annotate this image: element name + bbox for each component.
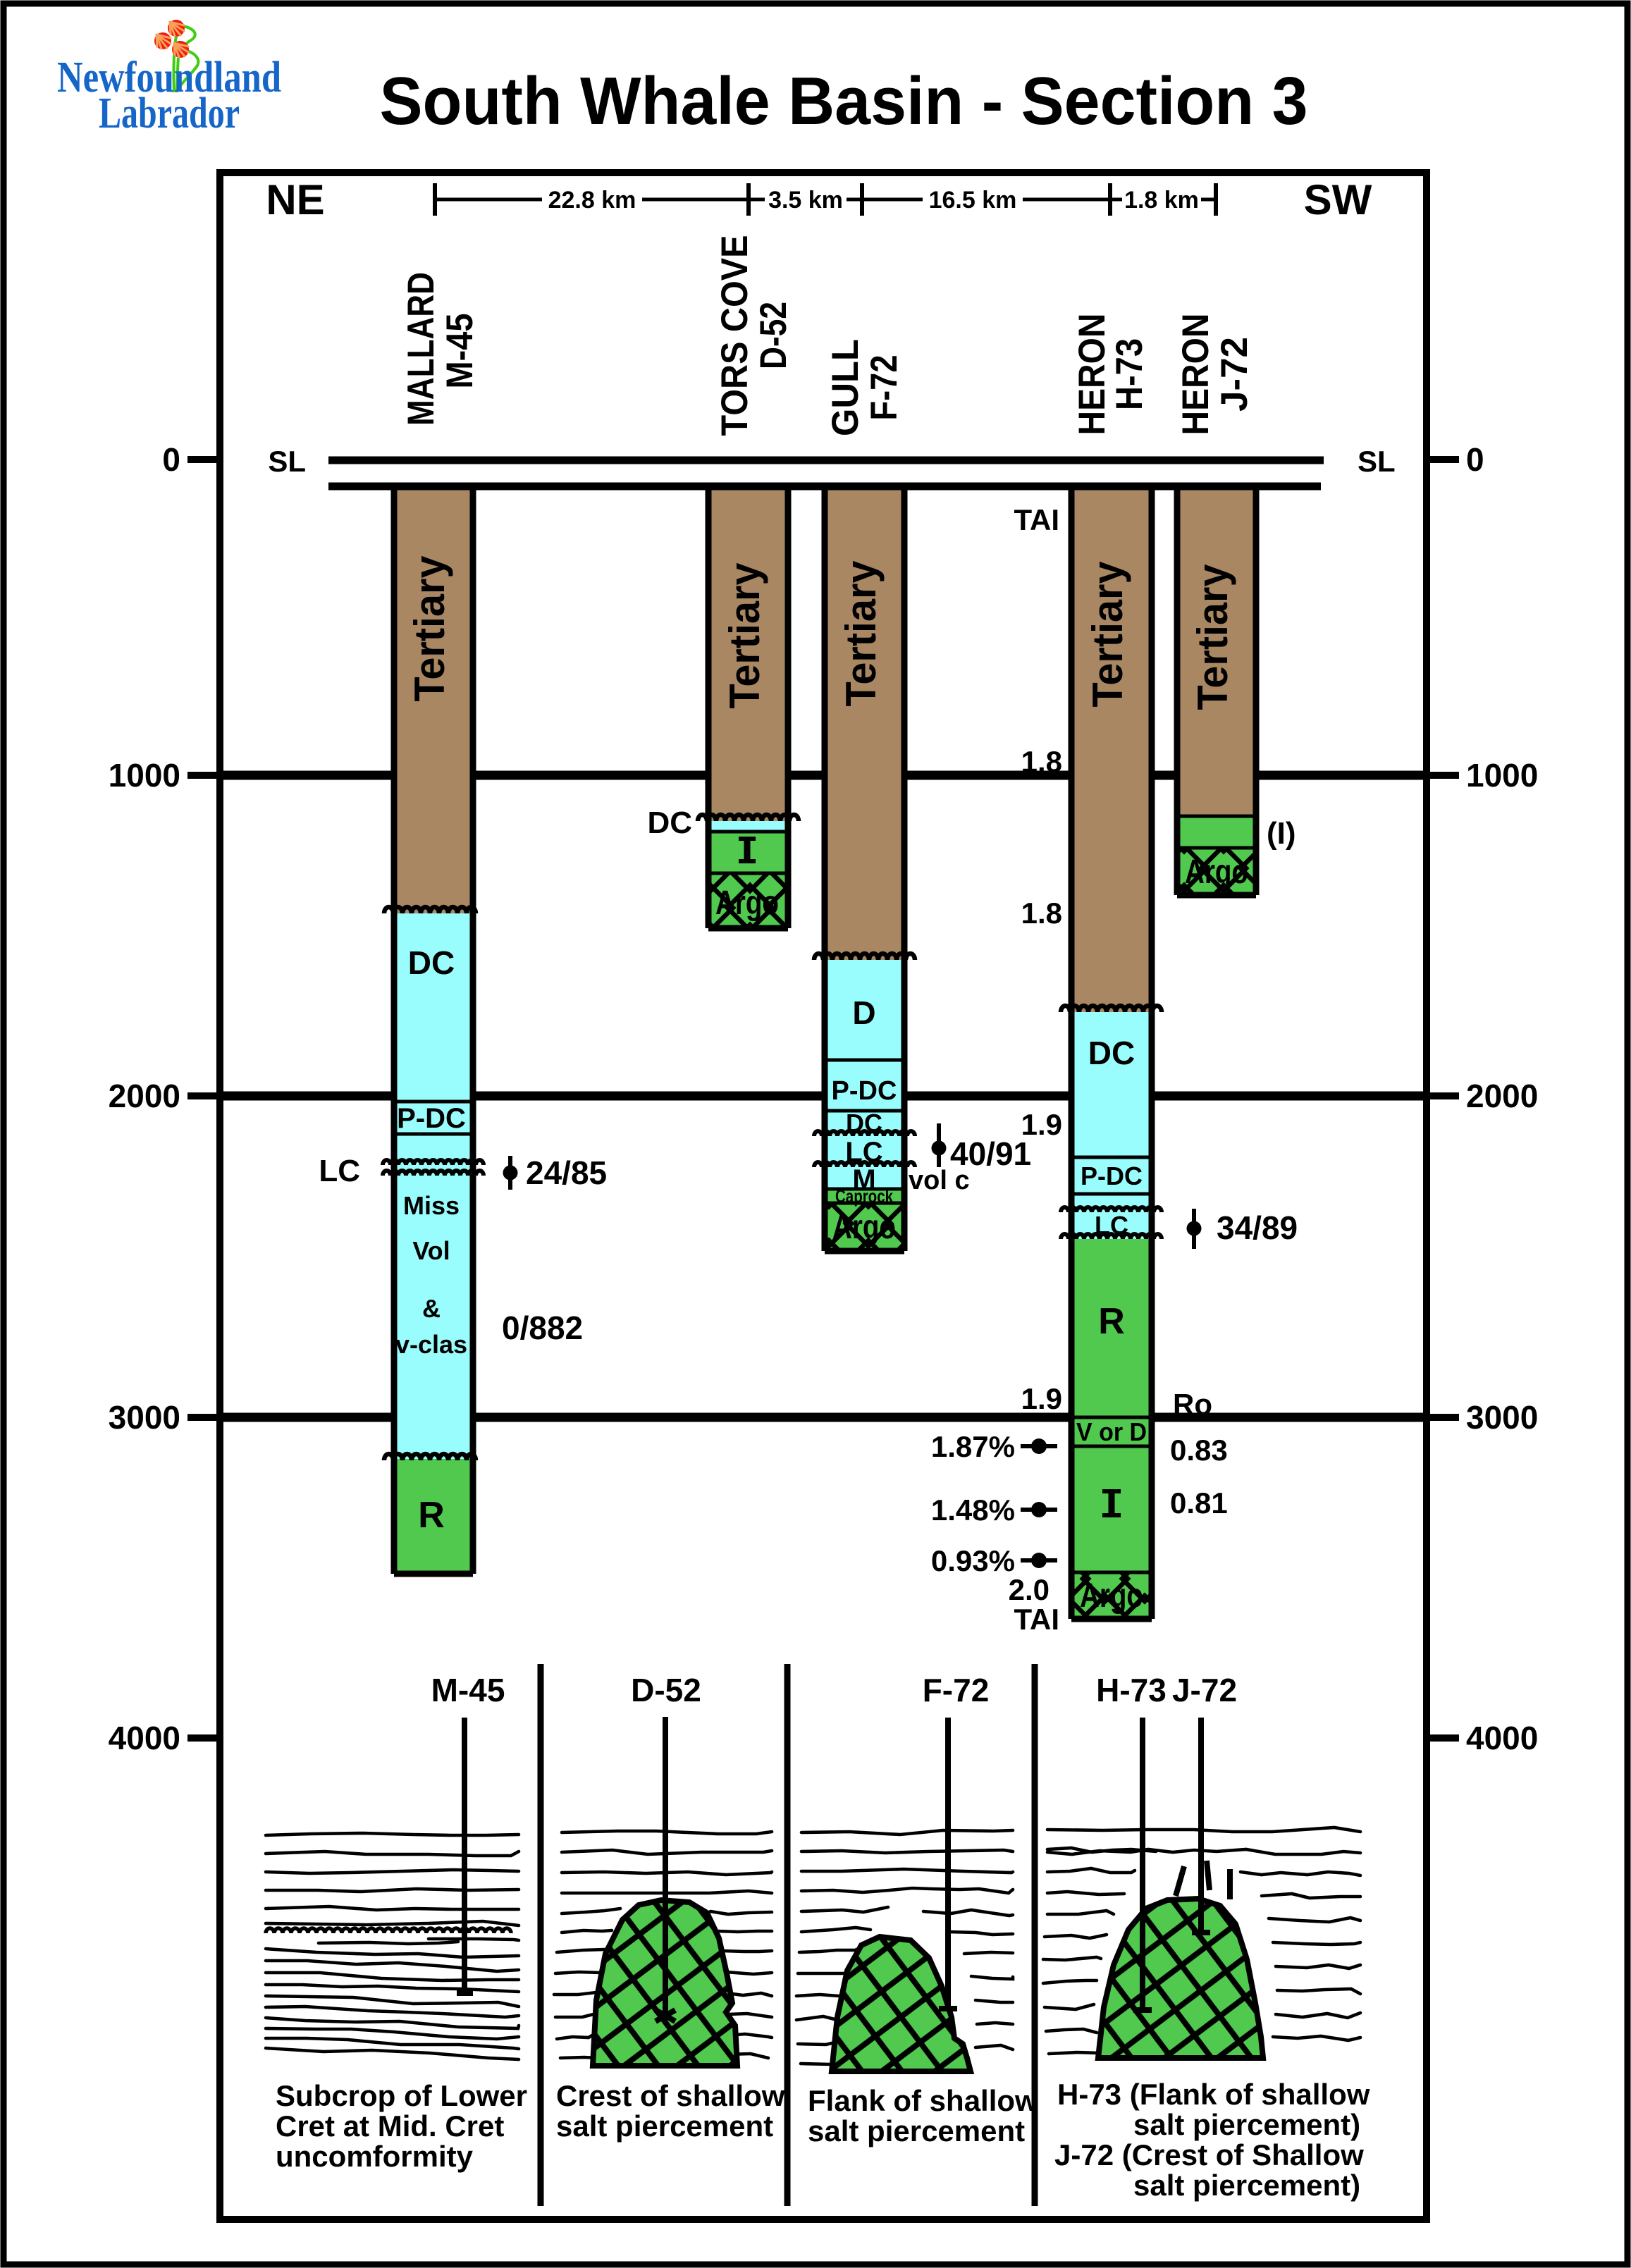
svg-text:J-72: J-72 (1172, 1672, 1237, 1708)
svg-text:1000: 1000 (109, 757, 180, 794)
svg-text:1.8 km: 1.8 km (1124, 187, 1199, 214)
svg-text:0: 0 (162, 441, 180, 478)
svg-text:Cret at Mid. Cret: Cret at Mid. Cret (276, 2109, 504, 2143)
svg-text:Caprock: Caprock (835, 1185, 893, 1207)
svg-text:Tertiary: Tertiary (1189, 564, 1236, 710)
svg-text:24/85: 24/85 (526, 1154, 607, 1191)
svg-text:salt piercement): salt piercement) (1133, 2169, 1360, 2202)
svg-text:F-72: F-72 (863, 355, 905, 421)
svg-text:P-DC: P-DC (397, 1103, 466, 1134)
svg-text:F-72: F-72 (923, 1672, 990, 1708)
svg-text:v-clas: v-clas (395, 1330, 467, 1359)
svg-text:2.0: 2.0 (1009, 1573, 1050, 1606)
svg-text:salt piercement: salt piercement (556, 2109, 773, 2143)
svg-text:H-73 (Flank of shallow: H-73 (Flank of shallow (1057, 2078, 1370, 2111)
svg-text:Tertiary: Tertiary (1084, 561, 1131, 708)
svg-text:Crest of shallow: Crest of shallow (556, 2079, 785, 2112)
svg-text:4000: 4000 (109, 1720, 180, 1756)
svg-text:1.8: 1.8 (1021, 745, 1062, 778)
svg-text:3.5 km: 3.5 km (768, 187, 843, 214)
svg-text:SL: SL (268, 445, 306, 478)
svg-text:1.87%: 1.87% (931, 1430, 1015, 1463)
svg-text:vol c: vol c (909, 1166, 970, 1195)
svg-text:Labrador: Labrador (99, 90, 240, 137)
svg-text:salt piercement: salt piercement (808, 2114, 1025, 2147)
svg-text:(I): (I) (1267, 816, 1296, 851)
svg-text:2000: 2000 (109, 1078, 180, 1114)
svg-text:P-DC: P-DC (1081, 1161, 1143, 1190)
svg-text:V or D: V or D (1076, 1417, 1147, 1446)
svg-text:HERON: HERON (1175, 314, 1217, 436)
svg-text:LC: LC (319, 1154, 360, 1188)
svg-text:HERON: HERON (1071, 314, 1113, 436)
svg-text:4000: 4000 (1466, 1720, 1538, 1756)
svg-text:Miss: Miss (403, 1191, 460, 1220)
svg-text:34/89: 34/89 (1217, 1209, 1298, 1246)
svg-text:1.9: 1.9 (1021, 1108, 1062, 1141)
svg-text:D-52: D-52 (631, 1672, 701, 1708)
svg-text:uncomformity: uncomformity (276, 2140, 474, 2173)
svg-text:J-72: J-72 (1214, 337, 1255, 412)
svg-text:D-52: D-52 (753, 302, 794, 369)
svg-text:P-DC: P-DC (832, 1076, 897, 1106)
svg-text:0/882: 0/882 (502, 1309, 583, 1346)
svg-text:NE: NE (266, 176, 324, 223)
svg-text:Argo: Argo (832, 1209, 896, 1246)
svg-text:Tertiary: Tertiary (721, 562, 768, 709)
svg-text:R: R (418, 1495, 445, 1536)
svg-text:1.9: 1.9 (1021, 1382, 1062, 1415)
svg-text:0.93%: 0.93% (931, 1544, 1015, 1577)
svg-text:D: D (852, 994, 875, 1031)
svg-text:M-45: M-45 (439, 314, 481, 389)
svg-text:TAI: TAI (1014, 503, 1059, 536)
svg-text:J-72 (Crest of Shallow: J-72 (Crest of Shallow (1054, 2138, 1364, 2171)
svg-text:H-73: H-73 (1109, 338, 1150, 410)
svg-text:South Whale Basin - Section 3: South Whale Basin - Section 3 (380, 63, 1308, 139)
svg-text:1000: 1000 (1466, 757, 1538, 794)
svg-text:0.81: 0.81 (1170, 1486, 1228, 1520)
svg-text:salt piercement): salt piercement) (1133, 2108, 1360, 2141)
svg-text:SL: SL (1358, 445, 1396, 478)
svg-text:1.48%: 1.48% (931, 1493, 1015, 1527)
svg-text:GULL: GULL (825, 339, 866, 436)
svg-text:DC: DC (408, 944, 455, 981)
svg-text:DC: DC (647, 806, 692, 840)
svg-text:Tertiary: Tertiary (406, 555, 453, 702)
svg-text:Flank of shallow: Flank of shallow (808, 2084, 1038, 2117)
svg-text:&: & (422, 1294, 441, 1323)
svg-text:1.8: 1.8 (1021, 896, 1062, 930)
svg-text:DC: DC (1088, 1035, 1135, 1071)
svg-text:R: R (1098, 1301, 1125, 1342)
svg-text:Argo: Argo (715, 885, 779, 922)
svg-text:Argo: Argo (1185, 853, 1248, 891)
svg-text:H-73: H-73 (1096, 1672, 1167, 1708)
svg-text:Tertiary: Tertiary (837, 560, 885, 707)
svg-text:3000: 3000 (1466, 1399, 1538, 1436)
svg-text:Argo: Argo (1080, 1577, 1143, 1615)
svg-text:Ro: Ro (1173, 1388, 1212, 1421)
svg-text:0: 0 (1466, 441, 1484, 478)
svg-text:16.5 km: 16.5 km (929, 187, 1017, 214)
svg-text:MALLARD: MALLARD (400, 272, 442, 426)
svg-text:SW: SW (1304, 176, 1372, 223)
svg-text:3000: 3000 (109, 1399, 180, 1436)
svg-text:22.8 km: 22.8 km (548, 187, 636, 214)
svg-text:M-45: M-45 (431, 1672, 505, 1708)
svg-text:TAI: TAI (1014, 1603, 1059, 1636)
svg-text:2000: 2000 (1466, 1078, 1538, 1114)
svg-text:TORS COVE: TORS COVE (714, 235, 756, 436)
svg-text:0.83: 0.83 (1170, 1434, 1228, 1467)
svg-text:Vol: Vol (412, 1236, 450, 1265)
svg-text:Subcrop of Lower: Subcrop of Lower (276, 2079, 527, 2112)
